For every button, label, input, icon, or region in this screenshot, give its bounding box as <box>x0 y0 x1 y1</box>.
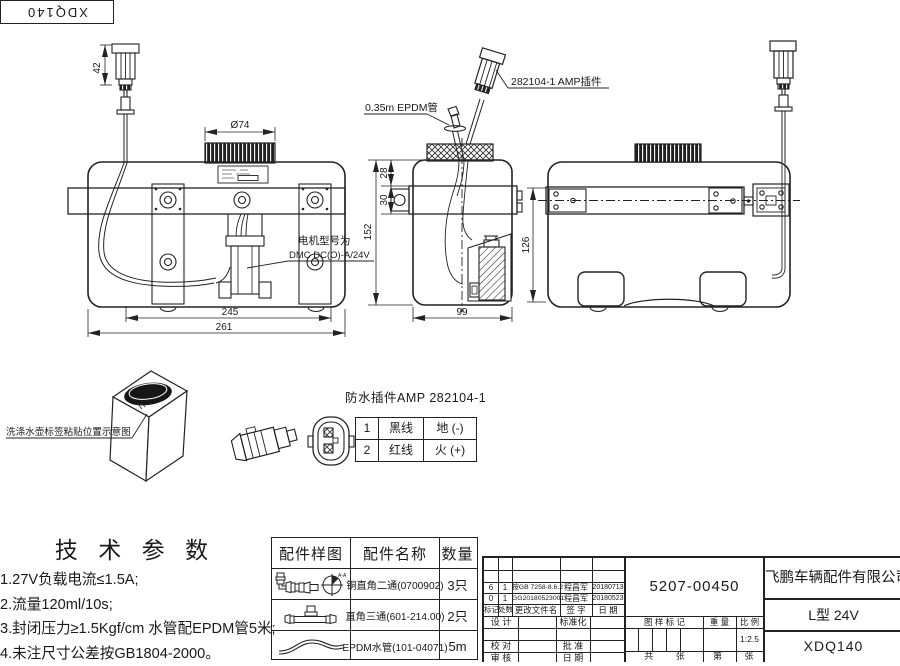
pin-function: 地 (-) <box>424 418 476 439</box>
sheet-no-label: 第 张 <box>703 651 763 662</box>
pump-front <box>219 214 271 298</box>
amp-connector-side <box>470 48 505 95</box>
date-label: 日 期 <box>556 652 590 662</box>
tech-param-item: 4.未注尺寸公差按GB1804-2000。 <box>0 642 274 666</box>
parts-header-name: 配件名称 <box>351 538 440 568</box>
pin-no: 1 <box>356 418 379 439</box>
dim-28: 28 <box>379 167 390 179</box>
revhdr-date: 日 期 <box>592 604 624 616</box>
company-name: 飞鹏车辆配件有限公司 <box>765 558 900 598</box>
motor-model-label-line2: DMC DC(O)-A/24V <box>289 250 370 261</box>
approve-label: 批 准 <box>556 640 590 652</box>
part-name: EPDM水管(101-04071) <box>351 631 440 660</box>
filler-cap-front <box>205 143 275 163</box>
bottle-note-label: 洗涤水壶标签粘贴位置示意图 <box>6 426 131 438</box>
connector-detail-title: 防水插件AMP 282104-1 <box>345 387 486 406</box>
dim-42: 42 <box>92 62 103 74</box>
weight-label: 重 量 <box>703 616 736 628</box>
part-qty: 5m <box>440 631 475 660</box>
check-label: 校 对 <box>484 640 518 652</box>
part-number: 5207-00450 <box>626 558 763 616</box>
tech-params-title: 技 术 参 数 <box>16 531 254 565</box>
audit-label: 审 核 <box>484 652 518 662</box>
product-label-plate <box>218 166 268 183</box>
parts-table: 配件样图 配件名称 数量 A-A 铜直角二通(0700902) 3只 <box>271 537 478 660</box>
part-name: 铜直角二通(0700902) <box>351 569 440 599</box>
revhdr-mark: 标记 <box>484 604 498 616</box>
dim-126: 126 <box>521 236 532 253</box>
tech-param-item: 2.流量120ml/10s; <box>0 593 274 618</box>
tech-param-item: 1.27V负载电流≤1.5A; <box>0 568 274 593</box>
drawing-number: XDQ140 <box>765 632 900 660</box>
rev1-doc: 按GB 7258-8.6.2 <box>512 582 560 593</box>
standard-label: 标准化 <box>556 616 590 628</box>
connector-front-drawing <box>308 417 354 465</box>
title-block: 6 1 按GB 7258-8.6.2 程昌军 20180713 0 1 GG20… <box>482 556 900 662</box>
revhdr-sign: 签 字 <box>560 604 592 616</box>
filler-cap-rear <box>635 144 701 162</box>
rev1-mark: 6 <box>484 582 498 593</box>
tee-fitting-icon <box>272 600 351 630</box>
rev2-date: 20180523 <box>592 593 624 604</box>
engineering-drawing-sheet: { "corner": { "code": "XDQ140" }, "drawi… <box>0 0 900 660</box>
tech-params: 技 术 参 数 1.27V负载电流≤1.5A; 2.流量120ml/10s; 3… <box>0 531 274 666</box>
dim-261: 261 <box>216 322 233 333</box>
dim-245: 245 <box>222 307 239 318</box>
epdm-hose-icon <box>272 631 351 660</box>
dim-30: 30 <box>379 194 390 206</box>
rev1-sign: 程昌军 <box>560 582 592 593</box>
dim-99: 99 <box>456 307 468 318</box>
stamp-mark-label: 图 样 标 记 <box>626 616 703 628</box>
parts-header-sample: 配件样图 <box>272 538 351 568</box>
left-amp-connector <box>112 44 139 163</box>
pin-no: 2 <box>356 440 379 461</box>
pump-side <box>468 234 511 301</box>
part-qty: 2只 <box>440 600 475 630</box>
pin-wire: 红线 <box>379 440 424 461</box>
dim-74: Ø74 <box>231 120 250 131</box>
connector-side-drawing <box>229 418 299 464</box>
parts-header-row: 配件样图 配件名称 数量 <box>272 538 477 569</box>
design-label: 设 计 <box>484 616 518 628</box>
corner-code: XDQ140 <box>26 5 88 20</box>
tech-param-item: 3.封闭压力≥1.5Kgf/cm 水管配EPDM管5米; <box>0 617 274 642</box>
dim-152: 152 <box>363 223 374 240</box>
revhdr-count: 处数 <box>498 604 512 616</box>
parts-row-tee: 直角三通(601-214.00) 2只 <box>272 600 477 631</box>
rev2-doc: GG20180523001 <box>512 593 560 604</box>
rev1-count: 1 <box>498 582 512 593</box>
part-qty: 3只 <box>440 569 475 599</box>
front-view: 42 Ø74 <box>68 44 374 337</box>
rev2-count: 1 <box>498 593 512 604</box>
rev2-mark: 0 <box>484 593 498 604</box>
parts-header-qty: 数量 <box>440 538 475 568</box>
rev2-sign: 程昌军 <box>560 593 592 604</box>
pin-wire: 黑线 <box>379 418 424 439</box>
side-view: 282104-1 AMP插件 0.35m EPDM管 28 30 <box>363 48 609 322</box>
connector-detail <box>229 417 354 465</box>
filler-cap-side <box>427 144 493 161</box>
right-amp-connector <box>770 41 796 278</box>
sheet-total-label: 共 张 <box>626 651 703 662</box>
amp-connector-label: 282104-1 AMP插件 <box>511 75 601 88</box>
scale-value: 1:2.5 <box>736 628 763 651</box>
parts-row-elbow: A-A 铜直角二通(0700902) 3只 <box>272 569 477 600</box>
model-name: L型 24V <box>765 600 900 630</box>
corner-code-box: XDQ140 <box>0 0 114 24</box>
rev1-date: 20180713 <box>592 582 624 593</box>
bottle-sketch: 洗涤水壶标签粘贴位置示意图 <box>6 371 187 481</box>
elbow-fitting-icon: A-A <box>272 569 351 599</box>
epdm-tube-label: 0.35m EPDM管 <box>365 101 438 114</box>
pin-row-2: 2 红线 火 (+) <box>356 439 476 461</box>
scale-label: 比 例 <box>736 616 763 628</box>
pin-function: 火 (+) <box>424 440 476 461</box>
part-name: 直角三通(601-214.00) <box>351 600 440 630</box>
pin-table: 1 黑线 地 (-) 2 红线 火 (+) <box>355 417 477 462</box>
parts-row-hose: EPDM水管(101-04071) 5m <box>272 631 477 660</box>
motor-model-label-line1: 电机型号为 <box>298 234 351 247</box>
revhdr-doc: 更改文件名 <box>512 604 560 616</box>
pin-row-1: 1 黑线 地 (-) <box>356 418 476 439</box>
nozzle <box>445 107 466 132</box>
